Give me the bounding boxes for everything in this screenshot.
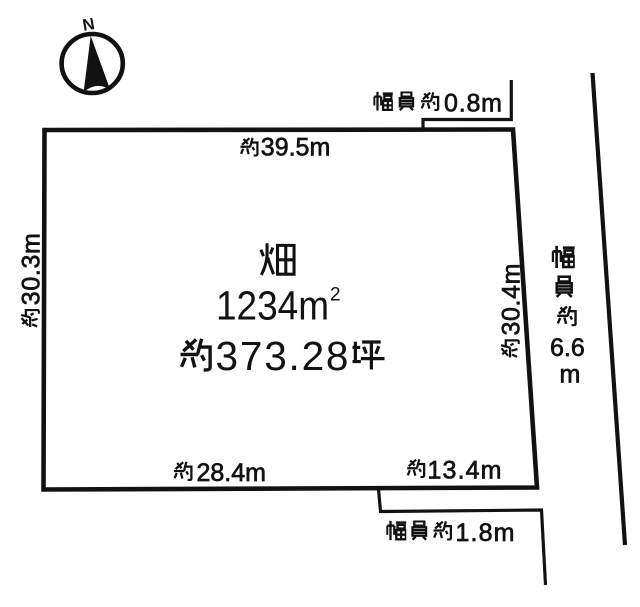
svg-text:30.4m: 30.4m: [497, 264, 525, 336]
svg-text:28.4m: 28.4m: [197, 459, 266, 487]
svg-text:373.28: 373.28: [216, 333, 349, 379]
svg-text:N: N: [81, 15, 96, 35]
svg-text:2: 2: [330, 285, 341, 306]
svg-text:6.6: 6.6: [550, 334, 585, 362]
svg-text:13.4m: 13.4m: [428, 457, 502, 485]
svg-text:m: m: [560, 361, 581, 389]
svg-text:1.8m: 1.8m: [456, 519, 515, 547]
svg-text:0.8m: 0.8m: [444, 90, 502, 118]
svg-text:1234m: 1234m: [216, 283, 329, 329]
svg-text:30.3m: 30.3m: [18, 233, 46, 305]
svg-text:39.5m: 39.5m: [261, 134, 330, 162]
